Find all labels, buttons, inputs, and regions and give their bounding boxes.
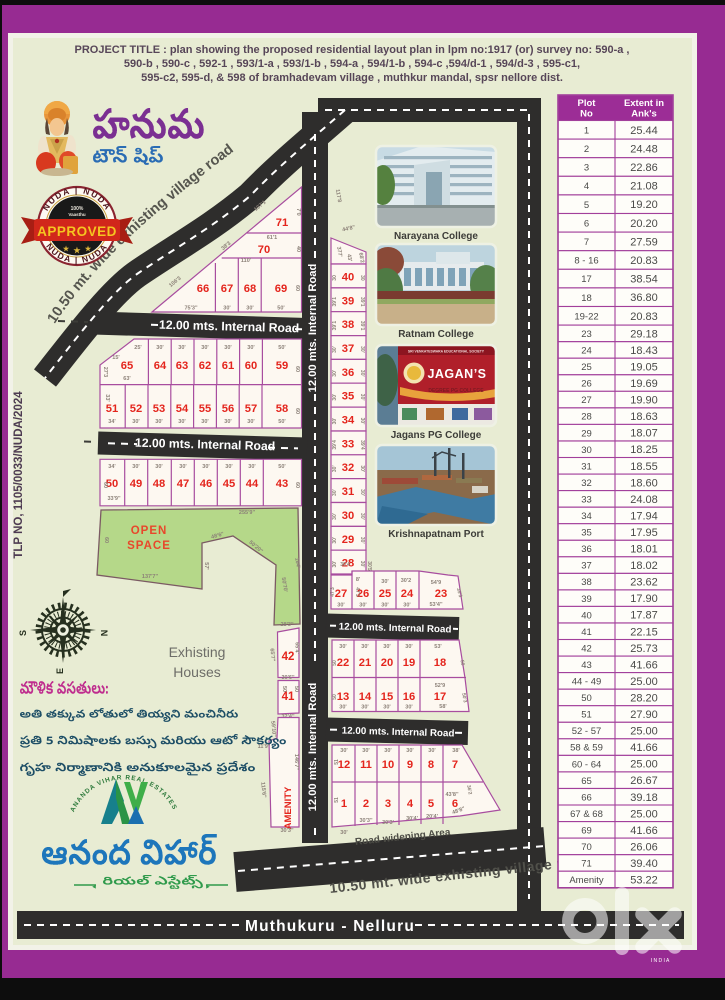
svg-text:18.60: 18.60 xyxy=(630,477,658,489)
svg-text:Vaasthu: Vaasthu xyxy=(68,212,86,217)
svg-text:34': 34' xyxy=(108,464,116,470)
svg-text:No: No xyxy=(580,109,593,120)
svg-text:34: 34 xyxy=(342,415,355,427)
svg-text:33: 33 xyxy=(581,494,592,505)
svg-text:30': 30' xyxy=(247,345,255,351)
svg-text:23: 23 xyxy=(435,588,447,600)
svg-text:19.90: 19.90 xyxy=(630,395,658,407)
svg-text:14: 14 xyxy=(359,691,372,703)
svg-text:47'3: 47'3 xyxy=(354,587,360,597)
svg-text:30'3': 30'3' xyxy=(382,820,394,826)
svg-text:39: 39 xyxy=(342,295,354,307)
svg-text:29: 29 xyxy=(342,534,354,546)
svg-text:25: 25 xyxy=(379,588,391,600)
svg-text:30': 30' xyxy=(155,464,163,470)
svg-text:39'1: 39'1 xyxy=(359,321,365,331)
svg-text:18.63: 18.63 xyxy=(630,411,658,423)
svg-text:49: 49 xyxy=(130,478,142,490)
svg-text:Amenity: Amenity xyxy=(569,875,604,886)
svg-text:SRI VENKATESWARA EDUCATIONAL S: SRI VENKATESWARA EDUCATIONAL SOCIETY xyxy=(408,350,485,354)
svg-text:255'9": 255'9" xyxy=(239,510,256,516)
svg-text:25.00: 25.00 xyxy=(630,759,658,771)
svg-text:30'2: 30'2 xyxy=(401,578,411,584)
svg-text:70: 70 xyxy=(258,244,270,256)
svg-text:E: E xyxy=(55,668,65,674)
svg-text:55: 55 xyxy=(199,403,211,415)
svg-text:38: 38 xyxy=(581,577,592,588)
svg-text:8: 8 xyxy=(428,759,434,771)
svg-text:19-22: 19-22 xyxy=(574,311,598,322)
svg-text:36: 36 xyxy=(342,367,354,379)
svg-text:APPROVED: APPROVED xyxy=(37,224,117,239)
svg-text:30': 30' xyxy=(132,464,140,470)
svg-text:4: 4 xyxy=(407,798,414,810)
svg-text:12.00 mts. Internal Road: 12.00 mts. Internal Road xyxy=(307,682,319,811)
svg-text:23: 23 xyxy=(581,329,592,340)
svg-text:50: 50 xyxy=(281,686,287,692)
svg-text:60: 60 xyxy=(294,408,300,414)
svg-text:18.43: 18.43 xyxy=(630,345,658,357)
svg-text:Plot: Plot xyxy=(578,98,597,109)
svg-text:44: 44 xyxy=(246,478,259,490)
svg-text:60: 60 xyxy=(294,285,300,291)
svg-text:30': 30' xyxy=(359,489,365,496)
svg-text:30'5: 30'5 xyxy=(366,561,372,571)
svg-text:15: 15 xyxy=(381,691,393,703)
svg-text:20.83: 20.83 xyxy=(630,255,658,267)
svg-text:27.59: 27.59 xyxy=(630,236,658,248)
svg-text:70: 70 xyxy=(581,842,592,853)
svg-text:39'4: 39'4 xyxy=(332,440,338,450)
svg-text:22.86: 22.86 xyxy=(630,162,658,174)
svg-text:7: 7 xyxy=(584,237,589,248)
svg-text:41.66: 41.66 xyxy=(630,742,658,754)
svg-text:40: 40 xyxy=(581,610,592,621)
svg-text:20'4': 20'4' xyxy=(426,814,438,820)
svg-text:30': 30' xyxy=(359,561,365,568)
svg-text:30': 30' xyxy=(361,644,369,650)
svg-text:19.05: 19.05 xyxy=(630,361,658,373)
svg-text:34': 34' xyxy=(108,419,116,425)
svg-text:18: 18 xyxy=(581,293,592,304)
svg-text:50: 50 xyxy=(332,660,338,666)
svg-text:39'1: 39'1 xyxy=(332,321,338,331)
svg-text:30': 30' xyxy=(361,705,369,711)
svg-text:15': 15' xyxy=(112,355,120,361)
svg-text:30': 30' xyxy=(332,370,338,377)
svg-text:50: 50 xyxy=(581,693,592,704)
svg-text:30': 30' xyxy=(178,419,186,425)
svg-text:590-b , 590-c , 592-1 , 593/1-: 590-b , 590-c , 592-1 , 593/1-a , 593/1-… xyxy=(124,58,580,70)
svg-text:38.54: 38.54 xyxy=(630,274,658,286)
svg-text:3: 3 xyxy=(385,798,391,810)
svg-text:35: 35 xyxy=(342,391,354,403)
svg-text:35: 35 xyxy=(581,528,592,539)
svg-text:30': 30' xyxy=(332,513,338,520)
svg-text:39: 39 xyxy=(581,594,592,605)
svg-text:Houses: Houses xyxy=(173,664,220,680)
svg-text:25.00: 25.00 xyxy=(630,726,658,738)
svg-text:Krishnapatnam Port: Krishnapatnam Port xyxy=(388,529,484,540)
svg-text:69: 69 xyxy=(581,825,592,836)
svg-text:24.48: 24.48 xyxy=(630,143,658,155)
svg-text:30: 30 xyxy=(359,275,365,281)
svg-text:32: 32 xyxy=(342,462,354,474)
svg-text:30': 30' xyxy=(403,603,411,609)
svg-text:137'7": 137'7" xyxy=(142,574,159,580)
svg-text:53.22: 53.22 xyxy=(630,875,658,887)
svg-text:19.69: 19.69 xyxy=(630,378,658,390)
svg-text:59: 59 xyxy=(276,360,288,372)
svg-text:30': 30' xyxy=(359,513,365,520)
svg-text:7'0: 7'0 xyxy=(295,208,301,215)
svg-text:23.62: 23.62 xyxy=(630,577,658,589)
svg-text:22: 22 xyxy=(337,657,349,669)
svg-text:47'3: 47'3 xyxy=(330,587,336,597)
svg-text:►: ► xyxy=(205,885,211,891)
svg-text:30': 30' xyxy=(332,561,338,568)
svg-text:57: 57 xyxy=(245,403,257,415)
svg-text:24: 24 xyxy=(581,346,592,357)
svg-text:N: N xyxy=(99,630,109,637)
svg-text:Narayana College: Narayana College xyxy=(394,231,478,242)
svg-text:30: 30 xyxy=(332,275,338,281)
svg-text:51: 51 xyxy=(106,403,118,415)
svg-text:65: 65 xyxy=(121,360,133,372)
svg-text:2: 2 xyxy=(584,144,589,155)
svg-text:48: 48 xyxy=(153,478,165,490)
svg-text:146'7": 146'7" xyxy=(293,754,299,771)
svg-text:36.80: 36.80 xyxy=(630,292,658,304)
svg-text:1: 1 xyxy=(584,125,589,136)
svg-text:24.08: 24.08 xyxy=(630,494,658,506)
svg-text:30': 30' xyxy=(224,419,232,425)
svg-text:13: 13 xyxy=(337,691,349,703)
svg-text:29.18: 29.18 xyxy=(630,328,658,340)
svg-text:52'9: 52'9 xyxy=(435,683,445,689)
svg-text:58: 58 xyxy=(276,403,288,415)
svg-text:17.94: 17.94 xyxy=(630,510,658,522)
svg-text:63: 63 xyxy=(176,360,188,372)
svg-text:25.00: 25.00 xyxy=(630,676,658,688)
svg-text:69: 69 xyxy=(275,283,287,295)
svg-text:39.40: 39.40 xyxy=(630,858,658,870)
svg-text:30': 30' xyxy=(155,419,163,425)
svg-text:30': 30' xyxy=(202,464,210,470)
svg-text:30': 30' xyxy=(406,748,414,754)
svg-text:67 & 68: 67 & 68 xyxy=(570,809,603,820)
svg-text:43: 43 xyxy=(581,660,592,671)
svg-text:25: 25 xyxy=(581,362,592,373)
svg-text:7: 7 xyxy=(452,759,458,771)
svg-text:30': 30' xyxy=(383,705,391,711)
svg-text:9: 9 xyxy=(407,759,413,771)
svg-text:30': 30' xyxy=(359,370,365,377)
svg-text:24: 24 xyxy=(401,588,414,600)
svg-text:30': 30' xyxy=(381,579,389,585)
svg-text:26: 26 xyxy=(581,379,592,390)
svg-text:30': 30' xyxy=(332,489,338,496)
svg-text:12.00 mts. Internal Road: 12.00 mts. Internal Road xyxy=(307,263,319,392)
svg-text:41: 41 xyxy=(282,691,295,703)
svg-text:★: ★ xyxy=(73,246,81,255)
svg-text:AMENITY: AMENITY xyxy=(283,786,294,829)
svg-text:30': 30' xyxy=(340,748,348,754)
svg-text:38': 38' xyxy=(452,748,460,754)
svg-text:39'4: 39'4 xyxy=(359,440,365,450)
svg-text:28'3": 28'3" xyxy=(280,622,293,628)
svg-text:30': 30' xyxy=(224,345,232,351)
svg-text:1: 1 xyxy=(341,798,347,810)
svg-text:38: 38 xyxy=(342,319,354,331)
svg-text:30': 30' xyxy=(178,345,186,351)
svg-text:10: 10 xyxy=(382,759,394,771)
svg-text:30': 30' xyxy=(339,705,347,711)
svg-text:65: 65 xyxy=(581,776,592,787)
svg-text:58': 58' xyxy=(439,704,447,710)
svg-text:30': 30' xyxy=(332,418,338,425)
svg-text:68: 68 xyxy=(244,283,256,295)
svg-text:41: 41 xyxy=(581,627,592,638)
svg-text:30': 30' xyxy=(359,418,365,425)
svg-text:11'9": 11'9" xyxy=(258,744,271,750)
svg-text:30': 30' xyxy=(359,465,365,472)
svg-text:52: 52 xyxy=(130,403,142,415)
svg-text:53: 53 xyxy=(153,403,165,415)
svg-text:58 & 59: 58 & 59 xyxy=(570,743,603,754)
svg-text:30'3": 30'3" xyxy=(359,818,372,824)
svg-text:37: 37 xyxy=(342,343,354,355)
svg-text:71: 71 xyxy=(276,217,288,229)
svg-text:30': 30' xyxy=(362,748,370,754)
svg-text:39'1: 39'1 xyxy=(332,297,338,307)
svg-text:51: 51 xyxy=(334,797,340,803)
svg-text:40: 40 xyxy=(342,271,354,283)
svg-text:66: 66 xyxy=(581,792,592,803)
svg-text:61'1: 61'1 xyxy=(267,235,277,241)
svg-text:21.08: 21.08 xyxy=(630,181,658,193)
svg-text:20: 20 xyxy=(381,657,393,669)
svg-text:18.25: 18.25 xyxy=(630,444,658,456)
svg-text:66: 66 xyxy=(197,283,209,295)
svg-text:40: 40 xyxy=(295,246,301,252)
svg-text:DEGREE PG COLLEGE: DEGREE PG COLLEGE xyxy=(428,388,484,394)
svg-text:30': 30' xyxy=(383,644,391,650)
svg-text:33'9": 33'9" xyxy=(107,496,120,502)
svg-text:36: 36 xyxy=(581,544,592,555)
svg-text:30': 30' xyxy=(132,419,140,425)
svg-text:8': 8' xyxy=(356,577,361,583)
svg-text:27: 27 xyxy=(581,395,592,406)
svg-text:27.90: 27.90 xyxy=(630,709,658,721)
svg-text:19.20: 19.20 xyxy=(630,199,658,211)
svg-text:60: 60 xyxy=(294,366,300,372)
svg-text:50: 50 xyxy=(332,694,338,700)
svg-text:56: 56 xyxy=(222,403,234,415)
svg-text:54: 54 xyxy=(176,403,189,415)
svg-text:110': 110' xyxy=(241,258,252,264)
svg-text:30': 30' xyxy=(428,748,436,754)
svg-text:20.20: 20.20 xyxy=(630,218,658,230)
svg-text:60 - 64: 60 - 64 xyxy=(572,759,602,770)
svg-text:Exhisting: Exhisting xyxy=(169,644,226,660)
svg-text:28: 28 xyxy=(581,412,592,423)
svg-text:50': 50' xyxy=(278,345,286,351)
svg-text:42: 42 xyxy=(581,643,592,654)
svg-text:11: 11 xyxy=(360,759,372,771)
svg-text:22.15: 22.15 xyxy=(630,626,658,638)
svg-text:29: 29 xyxy=(581,428,592,439)
svg-text:PROJECT TITLE : plan showing t: PROJECT TITLE : plan showing the propose… xyxy=(75,44,630,56)
svg-text:51: 51 xyxy=(581,710,592,721)
svg-text:TLP NO, 1105/0033/NUDA/2024: TLP NO, 1105/0033/NUDA/2024 xyxy=(13,391,25,559)
svg-text:30: 30 xyxy=(342,510,354,522)
svg-text:57': 57' xyxy=(203,562,209,570)
svg-text:30': 30' xyxy=(223,306,231,312)
svg-text:30': 30' xyxy=(381,603,389,609)
svg-text:30': 30' xyxy=(359,603,367,609)
svg-text:SPACE: SPACE xyxy=(127,540,171,552)
svg-text:595-c2, 595-d, & 598 of bramha: 595-c2, 595-d, & 598 of bramhadevam vill… xyxy=(141,72,563,84)
svg-text:17: 17 xyxy=(581,274,592,285)
svg-text:30': 30' xyxy=(405,705,413,711)
svg-text:34: 34 xyxy=(581,511,592,522)
svg-text:27: 27 xyxy=(335,588,347,600)
svg-text:63': 63' xyxy=(123,376,131,382)
svg-text:19: 19 xyxy=(403,657,415,669)
svg-text:18: 18 xyxy=(434,657,446,669)
svg-text:JAGAN’S: JAGAN’S xyxy=(427,367,486,381)
svg-text:61: 61 xyxy=(222,360,234,372)
svg-text:39'1: 39'1 xyxy=(359,297,365,307)
svg-text:42: 42 xyxy=(282,651,295,663)
svg-text:39.18: 39.18 xyxy=(630,792,658,804)
svg-text:17.90: 17.90 xyxy=(630,593,658,605)
svg-text:50': 50' xyxy=(278,464,286,470)
svg-text:3: 3 xyxy=(584,163,589,174)
svg-text:4: 4 xyxy=(584,181,589,192)
svg-text:30': 30' xyxy=(337,603,345,609)
svg-text:30': 30' xyxy=(201,419,209,425)
svg-text:53': 53' xyxy=(434,644,442,650)
svg-text:5: 5 xyxy=(584,200,589,211)
svg-text:★: ★ xyxy=(63,245,70,253)
svg-text:◄: ◄ xyxy=(91,885,97,891)
svg-text:53'4": 53'4" xyxy=(429,602,442,608)
svg-text:30': 30' xyxy=(247,419,255,425)
svg-text:18.01: 18.01 xyxy=(630,544,658,556)
svg-text:32: 32 xyxy=(581,478,592,489)
svg-text:25.00: 25.00 xyxy=(630,808,658,820)
svg-text:30': 30' xyxy=(359,394,365,401)
svg-text:46: 46 xyxy=(200,478,212,490)
svg-text:71: 71 xyxy=(581,859,592,870)
svg-text:30': 30' xyxy=(339,644,347,650)
svg-text:43: 43 xyxy=(276,478,288,490)
svg-text:43'8": 43'8" xyxy=(445,792,458,798)
svg-text:30': 30' xyxy=(225,464,233,470)
svg-text:41.66: 41.66 xyxy=(630,825,658,837)
svg-text:50': 50' xyxy=(278,419,286,425)
svg-text:30': 30' xyxy=(332,465,338,472)
svg-text:54'9: 54'9 xyxy=(431,580,441,586)
svg-text:26.67: 26.67 xyxy=(630,775,658,787)
svg-text:25.44: 25.44 xyxy=(630,125,658,137)
svg-text:30': 30' xyxy=(340,830,348,836)
svg-text:18.07: 18.07 xyxy=(630,428,658,440)
svg-text:27'3: 27'3 xyxy=(102,367,108,377)
svg-text:30': 30' xyxy=(384,748,392,754)
svg-text:25.73: 25.73 xyxy=(630,643,658,655)
svg-text:25': 25' xyxy=(134,345,142,351)
svg-text:21: 21 xyxy=(359,657,371,669)
svg-text:Ratnam College: Ratnam College xyxy=(398,329,474,340)
svg-text:Ank's: Ank's xyxy=(631,109,657,120)
svg-text:I N D I A: I N D I A xyxy=(651,958,670,964)
svg-text:33': 33' xyxy=(104,394,110,402)
svg-text:60: 60 xyxy=(103,537,109,543)
svg-text:65'7": 65'7" xyxy=(268,648,275,662)
svg-text:30': 30' xyxy=(332,346,338,353)
svg-text:30'4: 30'4 xyxy=(340,562,350,568)
svg-text:30': 30' xyxy=(405,644,413,650)
svg-text:44 - 49: 44 - 49 xyxy=(572,677,602,688)
svg-text:17: 17 xyxy=(434,691,446,703)
svg-text:37: 37 xyxy=(581,561,592,572)
svg-text:30'3": 30'3" xyxy=(280,828,293,834)
svg-text:30': 30' xyxy=(201,345,209,351)
svg-text:65'4': 65'4' xyxy=(294,642,300,654)
svg-text:31: 31 xyxy=(342,486,354,498)
svg-text:51: 51 xyxy=(334,759,340,765)
svg-text:18.02: 18.02 xyxy=(630,560,658,572)
svg-text:2: 2 xyxy=(363,798,369,810)
svg-text:Jagans PG College: Jagans PG College xyxy=(391,430,482,441)
svg-text:18.55: 18.55 xyxy=(630,461,658,473)
svg-text:41.66: 41.66 xyxy=(630,659,658,671)
svg-text:30': 30' xyxy=(359,537,365,544)
svg-text:30': 30' xyxy=(359,346,365,353)
svg-text:50: 50 xyxy=(293,686,299,692)
svg-text:17.95: 17.95 xyxy=(630,527,658,539)
svg-text:47: 47 xyxy=(177,478,189,490)
svg-text:60: 60 xyxy=(245,360,257,372)
svg-text:60: 60 xyxy=(294,482,300,488)
svg-text:8 - 16: 8 - 16 xyxy=(574,256,598,267)
svg-text:30': 30' xyxy=(156,345,164,351)
svg-text:26.06: 26.06 xyxy=(630,841,658,853)
svg-text:OPEN: OPEN xyxy=(131,525,168,537)
svg-text:30': 30' xyxy=(332,537,338,544)
svg-text:31: 31 xyxy=(581,461,592,472)
svg-text:52 - 57: 52 - 57 xyxy=(572,726,602,737)
svg-text:28.20: 28.20 xyxy=(630,692,658,704)
svg-text:30: 30 xyxy=(581,445,592,456)
svg-text:45: 45 xyxy=(223,478,235,490)
svg-text:S: S xyxy=(18,630,28,636)
svg-text:★: ★ xyxy=(85,245,92,253)
svg-text:16: 16 xyxy=(403,691,415,703)
svg-text:Muthukuru - Nelluru: Muthukuru - Nelluru xyxy=(245,918,415,935)
svg-text:30': 30' xyxy=(248,464,256,470)
svg-text:17.87: 17.87 xyxy=(630,610,658,622)
svg-text:75'3": 75'3" xyxy=(184,306,197,312)
svg-text:30'4': 30'4' xyxy=(406,816,418,822)
svg-text:62: 62 xyxy=(199,360,211,372)
svg-text:50': 50' xyxy=(277,306,285,312)
svg-text:30': 30' xyxy=(179,464,187,470)
svg-text:60: 60 xyxy=(102,482,108,488)
